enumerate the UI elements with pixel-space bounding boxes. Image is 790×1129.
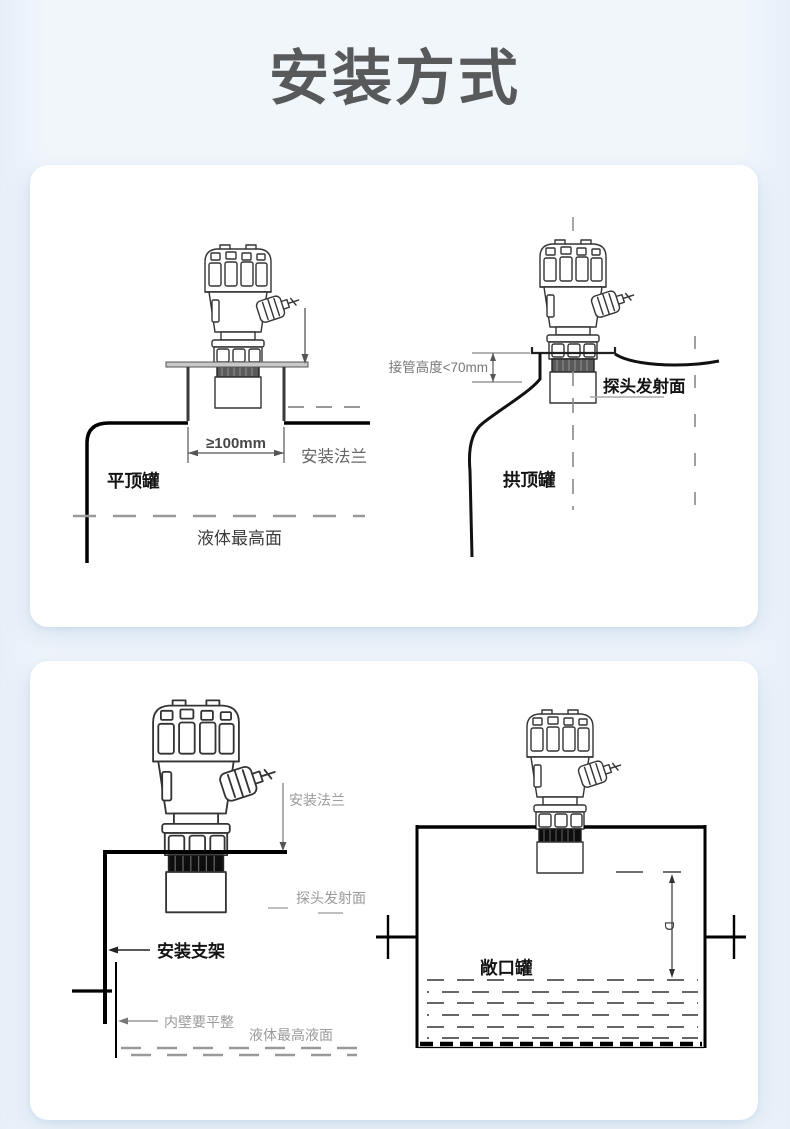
open-tank-diagram: D 敞口罐: [376, 710, 746, 1048]
wall-flat-label: 内壁要平整: [164, 1014, 234, 1030]
nozzle-height-dimension: 接管高度<70mm: [389, 353, 496, 382]
dome-tank-label: 拱顶罐: [503, 470, 556, 490]
opening-dim-label: ≥100mm: [206, 435, 266, 452]
installation-card-top: ≥100mm 安装法兰 平顶罐 液体最高面 接管高度<70mm 探头发射面 拱顶…: [30, 165, 758, 627]
bracket-mount-diagram: 安装法兰 探头发射面 安装支架 内壁要平整 液体最高液面: [72, 700, 366, 1058]
probe-face-leader-dashes: [268, 908, 343, 913]
probe-face-label: 探头发射面: [603, 376, 686, 396]
depth-dimension: D: [662, 874, 677, 978]
right-arrow-icon: [274, 450, 284, 456]
open-tank-label: 敞口罐: [480, 958, 533, 978]
dome-tank-left-wall: [469, 353, 540, 557]
side-pipe-ticks: [388, 915, 734, 959]
down-arrow-icon: [669, 969, 675, 978]
left-arrow-icon: [118, 1018, 128, 1025]
down-arrow-icon: [490, 374, 496, 382]
mounting-flange-plate: [166, 362, 308, 367]
sensor-bracket-mount: [153, 700, 279, 912]
left-arrow-icon: [108, 947, 118, 954]
depth-dim-label: D: [662, 921, 677, 930]
sensor-flat-tank: [205, 245, 302, 408]
up-arrow-icon: [669, 874, 675, 883]
top-diagrams: ≥100mm 安装法兰 平顶罐 液体最高面 接管高度<70mm 探头发射面 拱顶…: [30, 165, 758, 627]
probe-face-label: 探头发射面: [296, 890, 366, 906]
flat-tank-diagram: ≥100mm 安装法兰 平顶罐 液体最高面: [73, 245, 370, 563]
liquid-label: 液体最高液面: [249, 1027, 333, 1043]
opening-dimension: ≥100mm: [188, 427, 284, 463]
liquid-dashes-group: [427, 980, 698, 1038]
dome-tank-right-top: [615, 354, 719, 365]
bottom-diagrams: 安装法兰 探头发射面 安装支架 内壁要平整 液体最高液面 D 敞口罐: [30, 661, 758, 1120]
dome-tank-diagram: 接管高度<70mm 探头发射面 拱顶罐: [389, 217, 719, 557]
installation-card-bottom: 安装法兰 探头发射面 安装支架 内壁要平整 液体最高液面 D 敞口罐: [30, 661, 758, 1120]
flange-label: 安装法兰: [301, 447, 367, 466]
sensor-open-tank: [527, 710, 624, 873]
bracket-label: 安装支架: [157, 941, 225, 961]
left-arrow-icon: [188, 450, 198, 456]
down-arrow-icon: [280, 842, 287, 851]
flat-tank-label: 平顶罐: [107, 471, 160, 491]
nozzle-dim-label: 接管高度<70mm: [389, 359, 488, 375]
flange-label: 安装法兰: [289, 792, 345, 808]
up-arrow-icon: [490, 353, 496, 361]
page-title: 安装方式: [0, 30, 790, 117]
liquid-label: 液体最高面: [197, 529, 282, 548]
